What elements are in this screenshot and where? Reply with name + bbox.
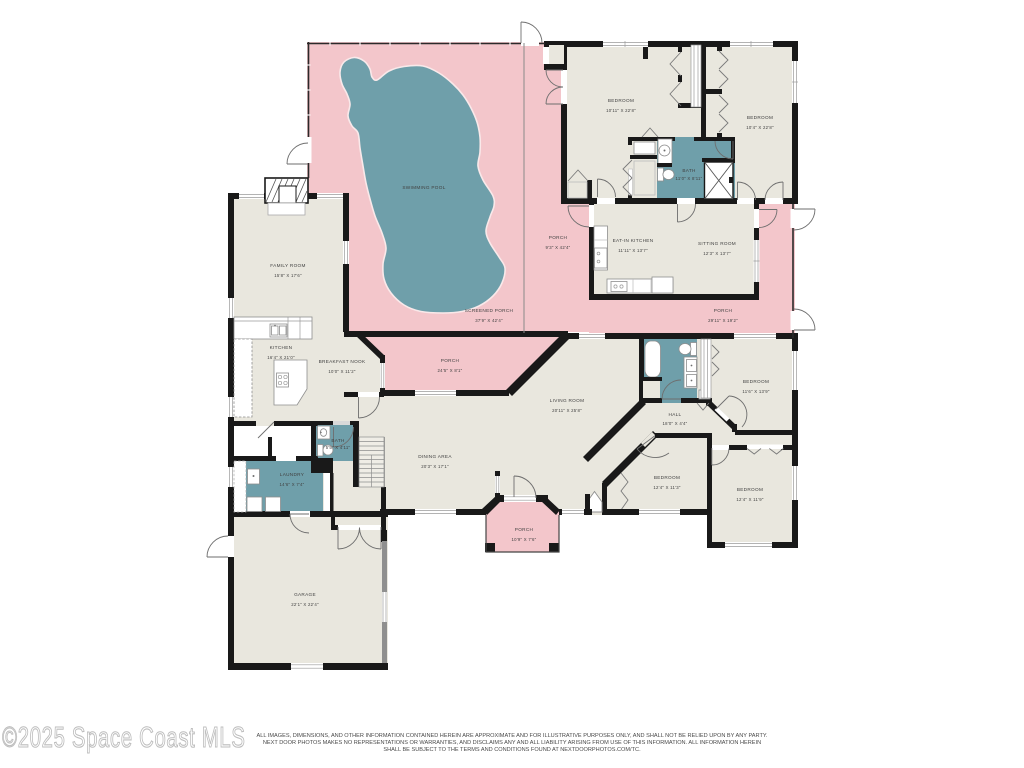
svg-text:29'11" X 19'2": 29'11" X 19'2": [708, 318, 738, 323]
svg-text:24'5" X 8'1": 24'5" X 8'1": [438, 368, 463, 373]
svg-text:10'4" X 22'8": 10'4" X 22'8": [746, 125, 774, 130]
svg-text:HALL: HALL: [669, 412, 682, 417]
svg-text:10'0" X 11'2": 10'0" X 11'2": [328, 369, 355, 374]
svg-text:BREAKFAST NOOK: BREAKFAST NOOK: [319, 359, 366, 364]
svg-text:KITCHEN: KITCHEN: [270, 345, 293, 350]
svg-text:SHALL BE SUBJECT TO THE TERMS: SHALL BE SUBJECT TO THE TERMS AND CONDIT…: [383, 747, 641, 753]
svg-text:22'1" X 22'4": 22'1" X 22'4": [291, 602, 319, 607]
svg-text:SWIMMING POOL: SWIMMING POOL: [402, 185, 445, 190]
svg-text:SITTING ROOM: SITTING ROOM: [698, 241, 736, 246]
svg-text:NEXT DOOR PHOTOS MAKES NO REPR: NEXT DOOR PHOTOS MAKES NO REPRESENTATION…: [263, 740, 761, 746]
svg-text:BEDROOM: BEDROOM: [737, 487, 763, 492]
svg-text:11'0" X 8'11": 11'0" X 8'11": [676, 176, 703, 181]
svg-text:11'11" X 13'7": 11'11" X 13'7": [618, 248, 648, 253]
svg-text:LAUNDRY: LAUNDRY: [280, 472, 305, 477]
svg-text:37'9" X 42'4": 37'9" X 42'4": [475, 318, 503, 323]
svg-text:FAMILY ROOM: FAMILY ROOM: [270, 263, 305, 268]
svg-text:PORCH: PORCH: [441, 358, 459, 363]
svg-text:11'6" X 13'9": 11'6" X 13'9": [742, 389, 769, 394]
svg-text:PORCH: PORCH: [515, 527, 533, 532]
svg-text:10'9" X 7'6": 10'9" X 7'6": [512, 537, 537, 542]
svg-text:PORCH: PORCH: [549, 235, 567, 240]
svg-text:18'0" X 4'4": 18'0" X 4'4": [663, 421, 688, 426]
svg-text:15'8" X 17'6": 15'8" X 17'6": [274, 273, 302, 278]
svg-text:12'4" X 11'9": 12'4" X 11'9": [736, 497, 763, 502]
svg-text:BEDROOM: BEDROOM: [747, 115, 773, 120]
svg-text:SCREENED PORCH: SCREENED PORCH: [465, 308, 513, 313]
svg-text:10'11" X 22'8": 10'11" X 22'8": [606, 108, 636, 113]
svg-text:20'11" X 25'8": 20'11" X 25'8": [552, 408, 582, 413]
svg-text:5'5" X 4'11": 5'5" X 4'11": [326, 445, 351, 450]
svg-text:DINING AREA: DINING AREA: [418, 454, 452, 459]
svg-text:14'6" X 7'4": 14'6" X 7'4": [280, 482, 305, 487]
svg-text:BEDROOM: BEDROOM: [654, 475, 680, 480]
svg-text:LIVING ROOM: LIVING ROOM: [550, 398, 585, 403]
svg-text:12'3" X 13'7": 12'3" X 13'7": [703, 251, 731, 256]
svg-text:BATH: BATH: [682, 168, 695, 173]
svg-text:20'3" X 17'1": 20'3" X 17'1": [421, 464, 449, 469]
svg-text:BEDROOM: BEDROOM: [608, 98, 634, 103]
svg-text:BEDROOM: BEDROOM: [743, 379, 769, 384]
svg-text:PORCH: PORCH: [714, 308, 732, 313]
svg-text:16'4" X 21'0": 16'4" X 21'0": [267, 355, 295, 360]
svg-text:9'3" X 42'4": 9'3" X 42'4": [546, 245, 571, 250]
svg-text:EAT-IN KITCHEN: EAT-IN KITCHEN: [613, 238, 654, 243]
svg-text:GARAGE: GARAGE: [294, 592, 316, 597]
svg-text:12'4" X 11'3": 12'4" X 11'3": [653, 485, 680, 490]
svg-text:BATH: BATH: [331, 438, 344, 443]
svg-text:©2025 Space Coast MLS: ©2025 Space Coast MLS: [2, 723, 245, 754]
svg-text:ALL IMAGES, DIMENSIONS, AND OT: ALL IMAGES, DIMENSIONS, AND OTHER INFORM…: [257, 733, 768, 739]
